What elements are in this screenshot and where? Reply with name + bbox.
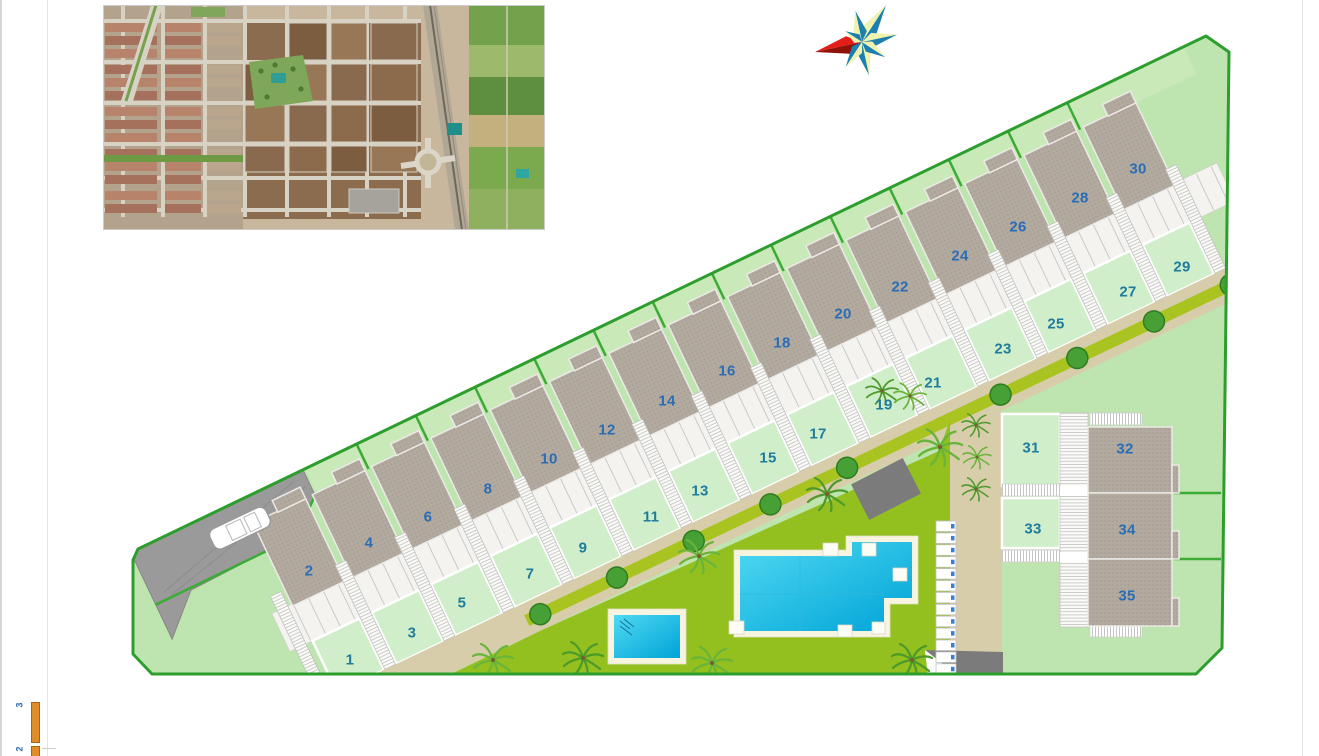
scale-tick <box>42 748 56 749</box>
page-border-left <box>47 0 48 756</box>
scale-label: 3 <box>15 702 25 707</box>
scale-bar-segment <box>31 702 40 743</box>
site-plan-page: 1234567891011121314151617181920212223242… <box>0 0 1319 756</box>
aerial-large-building <box>349 189 399 213</box>
scale-bar-segment <box>31 746 40 756</box>
scale-label: 2 <box>15 746 25 751</box>
page-border-right <box>1302 0 1303 756</box>
main-pool <box>729 536 918 637</box>
page-left-edge <box>0 0 2 756</box>
compass-rose-icon <box>808 3 904 85</box>
aerial-fields <box>469 5 545 230</box>
aerial-photo-inset <box>103 5 545 230</box>
access-road <box>950 398 1002 678</box>
kids-pool <box>608 609 686 664</box>
site-plan-canvas <box>0 0 1319 756</box>
